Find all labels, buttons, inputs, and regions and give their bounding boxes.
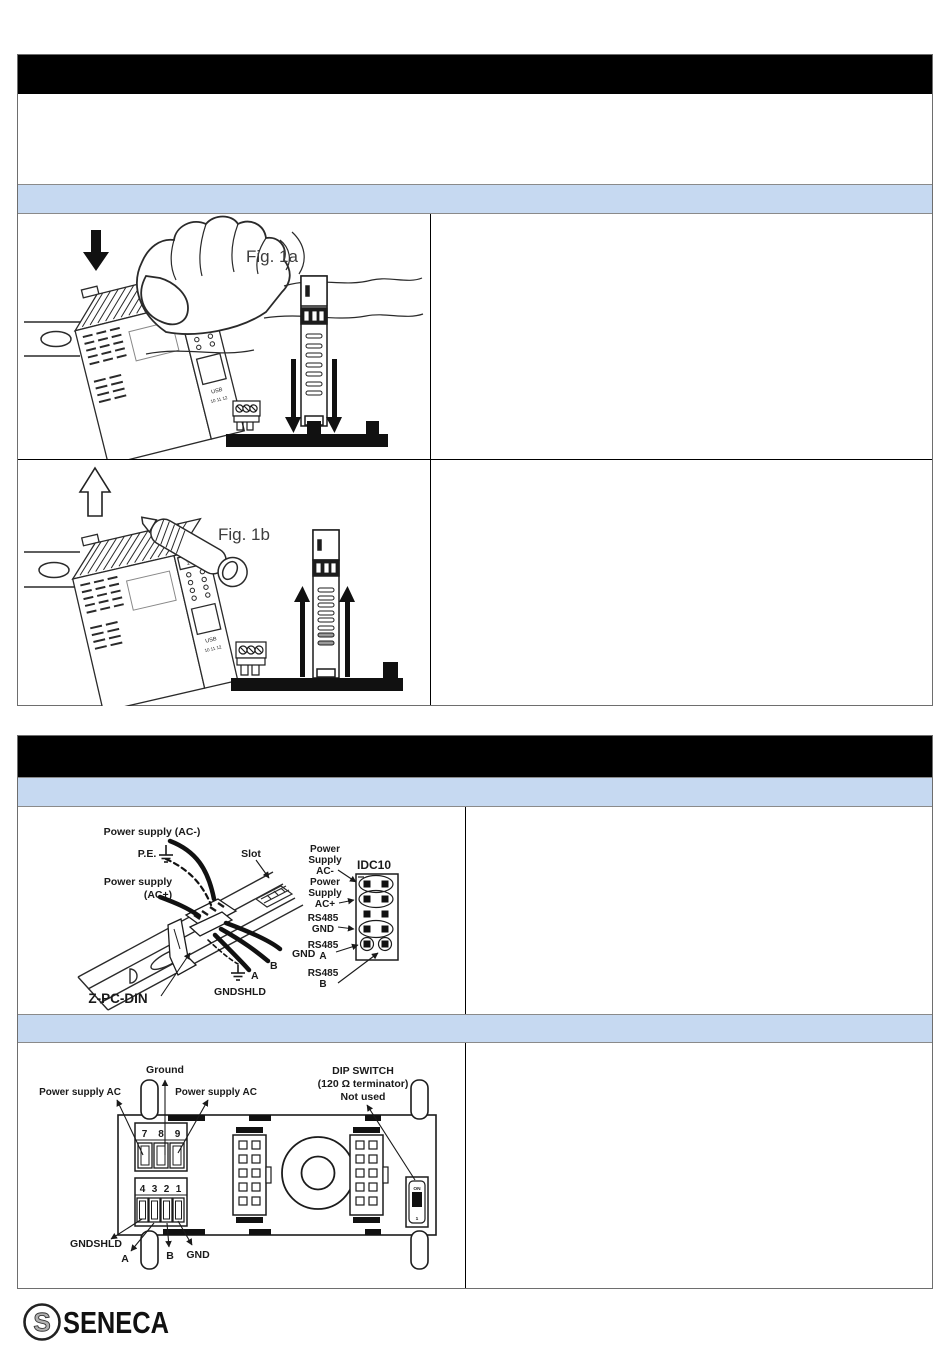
rear-drawing: 7 8 9 4 3 2 1 bbox=[18, 1043, 465, 1288]
section1-body-area bbox=[18, 94, 932, 184]
fig1a-drawing: 1 2 3 USB 10 11 12 bbox=[18, 214, 430, 459]
fig1b-label: Fig. 1b bbox=[218, 525, 270, 544]
terminal-3: 3 bbox=[152, 1184, 158, 1195]
idc10-label: GND bbox=[312, 924, 334, 935]
section-connections: Power supply (AC-) P.E. Slot Power suppl… bbox=[17, 735, 933, 1289]
section2-subheader-power bbox=[18, 777, 932, 807]
pull-up-arrow bbox=[80, 468, 110, 516]
slot-leader bbox=[256, 860, 269, 878]
rear-cell: 7 8 9 4 3 2 1 bbox=[18, 1043, 466, 1288]
fig1b-drawing: 1 2 3 USB 10 11 12 bbox=[18, 460, 430, 706]
label-power-ac-plus-2: (AC+) bbox=[144, 889, 172, 901]
bus-connector bbox=[168, 899, 236, 975]
section1-subheader-bar bbox=[18, 184, 932, 214]
label-a: A bbox=[121, 1253, 129, 1265]
idc10-label: A bbox=[319, 951, 326, 962]
label-b: B bbox=[270, 960, 278, 972]
terminal-connector bbox=[236, 642, 266, 675]
idc-connector-1 bbox=[233, 1127, 271, 1223]
label-power-ac-left: Power supply AC bbox=[39, 1087, 121, 1098]
label-power-ac-minus: Power supply (AC-) bbox=[104, 826, 201, 838]
fig1b-side-view bbox=[231, 530, 403, 691]
terminal-1: 1 bbox=[176, 1184, 182, 1195]
idc10-label: AC- bbox=[316, 866, 334, 877]
dip-slider bbox=[412, 1192, 422, 1207]
fig1a-description-cell bbox=[431, 214, 932, 459]
terminal-block-4321: 4 3 2 1 bbox=[135, 1178, 187, 1226]
idc10-label: RS485 bbox=[308, 940, 339, 951]
fig1b-description-cell bbox=[431, 460, 932, 705]
idc10-label: Power bbox=[310, 844, 340, 855]
idc10-label: Supply bbox=[308, 888, 342, 899]
terminal-block-789: 7 8 9 bbox=[135, 1123, 187, 1171]
wiring-drawing: Power supply (AC-) P.E. Slot Power suppl… bbox=[18, 807, 465, 1014]
idc10-label: AC+ bbox=[315, 899, 335, 910]
manual-page: 1 2 3 USB 10 11 12 bbox=[0, 0, 950, 1353]
section1-title-bar bbox=[18, 55, 932, 94]
seneca-logo-drawing: S SENECA bbox=[20, 1297, 172, 1345]
label-gndshld: GNDSHLD bbox=[214, 986, 266, 998]
din-module-isometric: 1 2 3 USB 10 11 12 bbox=[64, 511, 238, 706]
logo-brand-text: SENECA bbox=[63, 1305, 169, 1340]
idc10-label: RS485 bbox=[308, 913, 339, 924]
row-rear: 7 8 9 4 3 2 1 bbox=[18, 1043, 932, 1288]
rail-cross-section bbox=[226, 421, 388, 447]
idc10-label: RS485 bbox=[308, 968, 339, 979]
label-dip-3: Not used bbox=[341, 1091, 386, 1103]
section2-subheader-rear bbox=[18, 1014, 932, 1043]
hand-pressing bbox=[137, 217, 423, 355]
terminal-8: 8 bbox=[158, 1129, 164, 1140]
idc10-title: IDC10 bbox=[357, 858, 391, 872]
fig1b-cell: 1 2 3 USB 10 11 12 bbox=[18, 460, 431, 705]
row-wiring: Power supply (AC-) P.E. Slot Power suppl… bbox=[18, 807, 932, 1014]
wiring-cell: Power supply (AC-) P.E. Slot Power suppl… bbox=[18, 807, 466, 1014]
row-fig1a: 1 2 3 USB 10 11 12 bbox=[18, 214, 932, 459]
terminal-7: 7 bbox=[142, 1129, 148, 1140]
fig1a-cell: 1 2 3 USB 10 11 12 bbox=[18, 214, 431, 459]
idc10-label: B bbox=[319, 979, 326, 990]
logo-s-icon: S bbox=[33, 1307, 50, 1337]
terminal-9: 9 bbox=[175, 1129, 181, 1140]
label-slot: Slot bbox=[241, 848, 261, 860]
fig1a-label: Fig. 1a bbox=[246, 247, 299, 266]
label-pe: P.E. bbox=[138, 848, 157, 860]
din-rail bbox=[24, 552, 80, 587]
din-rail bbox=[24, 322, 82, 356]
label-zpcdin: Z-PC-DIN bbox=[88, 991, 147, 1006]
label-power-ac-right: Power supply AC bbox=[175, 1087, 257, 1098]
terminal-4: 4 bbox=[140, 1184, 146, 1195]
seneca-logo: S SENECA bbox=[20, 1297, 172, 1350]
idc10-connector: IDC10 bbox=[356, 858, 398, 960]
press-down-arrow bbox=[83, 230, 109, 271]
idc-connector-2 bbox=[350, 1127, 388, 1223]
label-a: A bbox=[251, 970, 259, 982]
idc10-label: Power bbox=[310, 877, 340, 888]
label-b: B bbox=[166, 1250, 174, 1262]
label-gnd: GND bbox=[186, 1249, 210, 1261]
label-dip-2: (120 Ω terminator) bbox=[318, 1078, 409, 1090]
terminal-connector bbox=[233, 401, 260, 430]
label-ground: Ground bbox=[146, 1064, 184, 1076]
dip-on-label: ON bbox=[413, 1186, 421, 1192]
label-power-ac-plus-1: Power supply bbox=[104, 876, 172, 888]
row-fig1b: 1 2 3 USB 10 11 12 bbox=[18, 459, 932, 705]
dip-pos-label: 1 bbox=[416, 1216, 419, 1222]
idc10-label: Supply bbox=[308, 855, 342, 866]
wiring-description-cell bbox=[466, 807, 932, 1014]
slot-connector bbox=[256, 886, 292, 907]
terminal-2: 2 bbox=[164, 1184, 170, 1195]
earth-symbol-gndshld bbox=[231, 965, 245, 980]
dip-switch: ON 1 bbox=[406, 1177, 428, 1227]
label-dip-1: DIP SWITCH bbox=[332, 1065, 394, 1077]
section2-title-bar bbox=[18, 736, 932, 777]
rear-description-cell bbox=[466, 1043, 932, 1288]
label-gndshld: GNDSHLD bbox=[70, 1238, 122, 1250]
section-installation: 1 2 3 USB 10 11 12 bbox=[17, 54, 933, 706]
